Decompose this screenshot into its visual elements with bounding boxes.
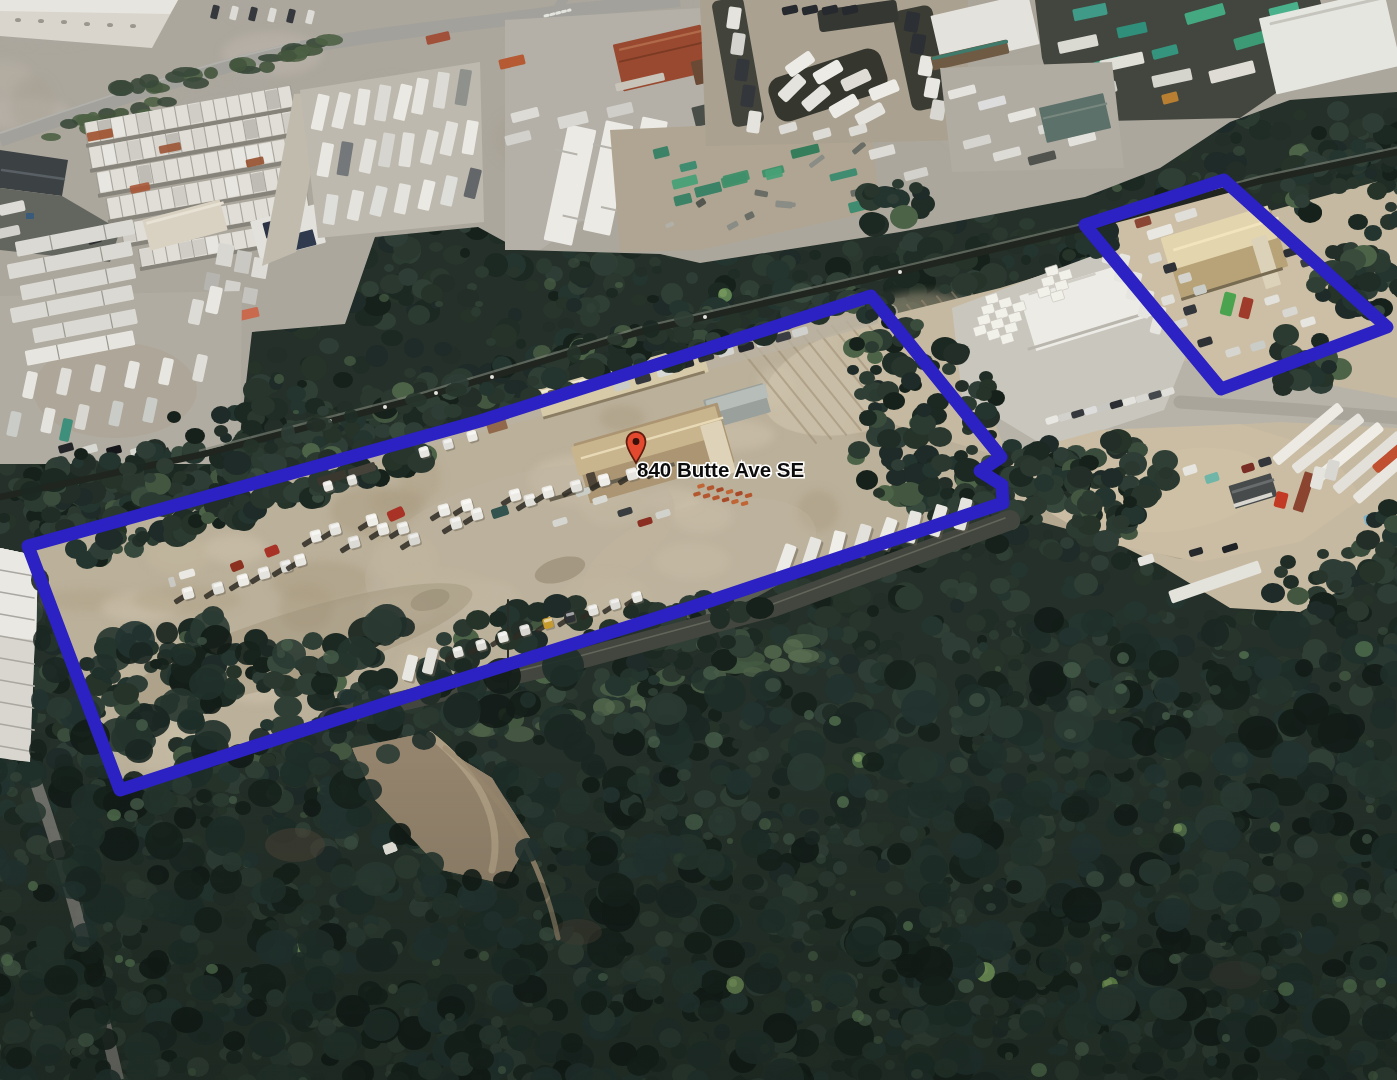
svg-text:840 Butte Ave SE: 840 Butte Ave SE <box>637 458 804 481</box>
